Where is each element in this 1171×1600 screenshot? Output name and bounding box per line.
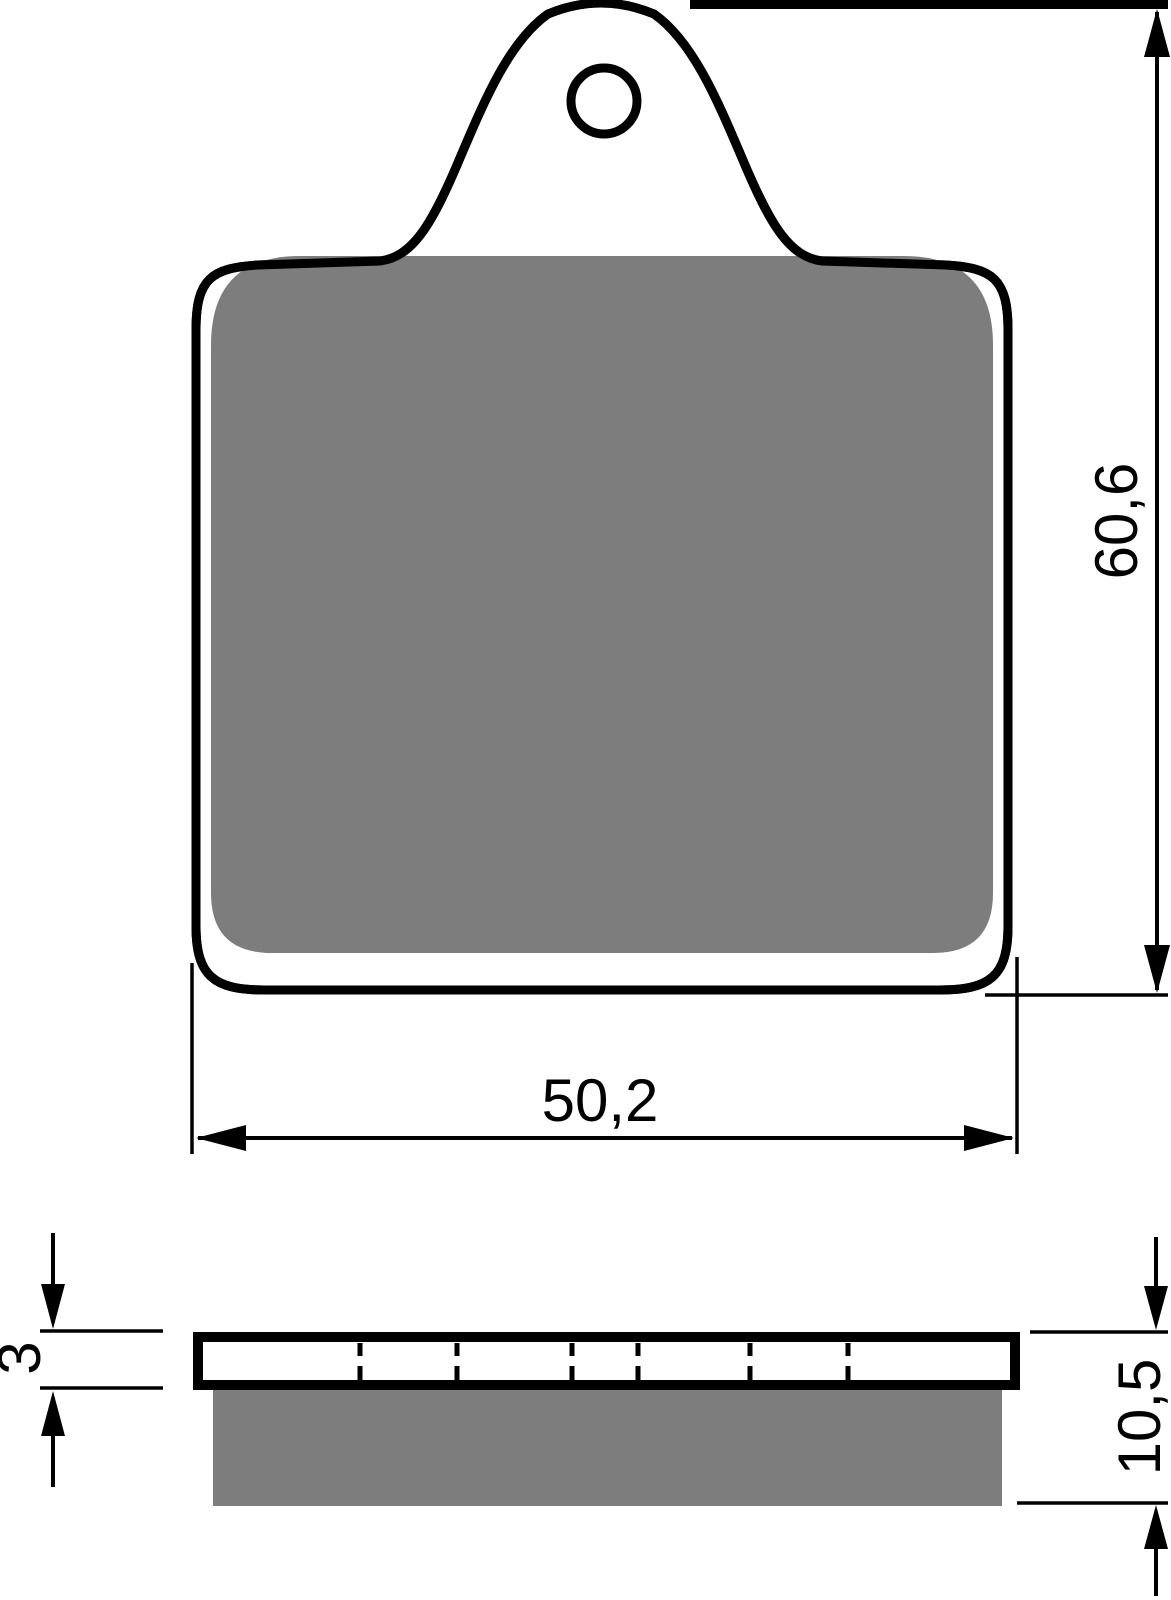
- extension-line-top-thick: [690, 0, 1168, 9]
- tick-mark: [570, 1366, 575, 1380]
- brake-pad-technical-drawing: 60,6 50,2: [0, 0, 1171, 1600]
- backplate-side: [198, 1337, 1015, 1385]
- tick-mark: [455, 1343, 460, 1356]
- dimension-width-label: 50,2: [542, 1067, 659, 1134]
- tick-mark: [570, 1343, 575, 1356]
- tick-mark: [636, 1343, 641, 1356]
- arrowhead-up-icon: [1144, 9, 1170, 57]
- dimension-total-thickness-label: 10,5: [1106, 1359, 1171, 1476]
- front-view: [196, 3, 1008, 990]
- dimension-height-label: 60,6: [1083, 463, 1150, 580]
- tick-mark: [846, 1343, 851, 1356]
- drawing-canvas: 60,6 50,2: [0, 0, 1171, 1600]
- arrowhead-down-icon: [1144, 945, 1170, 993]
- arrowhead-left-icon: [196, 1125, 246, 1151]
- side-view: [198, 1337, 1015, 1506]
- tick-mark: [846, 1366, 851, 1380]
- arrowhead-down-icon: [41, 1284, 65, 1329]
- friction-material-front: [211, 256, 993, 953]
- friction-material-side: [213, 1390, 1002, 1506]
- mounting-hole: [571, 68, 637, 134]
- arrowhead-down-icon: [1144, 1286, 1168, 1330]
- tick-mark: [358, 1366, 363, 1380]
- dimension-backplate-thickness-label: 3: [0, 1341, 53, 1374]
- tick-mark: [748, 1343, 753, 1356]
- tick-mark: [748, 1366, 753, 1380]
- arrowhead-up-icon: [41, 1391, 65, 1436]
- tick-mark: [455, 1366, 460, 1380]
- tick-mark: [358, 1343, 363, 1356]
- dimension-total-thickness: 10,5: [1017, 1237, 1171, 1596]
- dimension-backplate-thickness: 3: [0, 1233, 163, 1487]
- arrowhead-right-icon: [964, 1125, 1014, 1151]
- arrowhead-up-icon: [1144, 1505, 1168, 1549]
- tick-mark: [636, 1366, 641, 1380]
